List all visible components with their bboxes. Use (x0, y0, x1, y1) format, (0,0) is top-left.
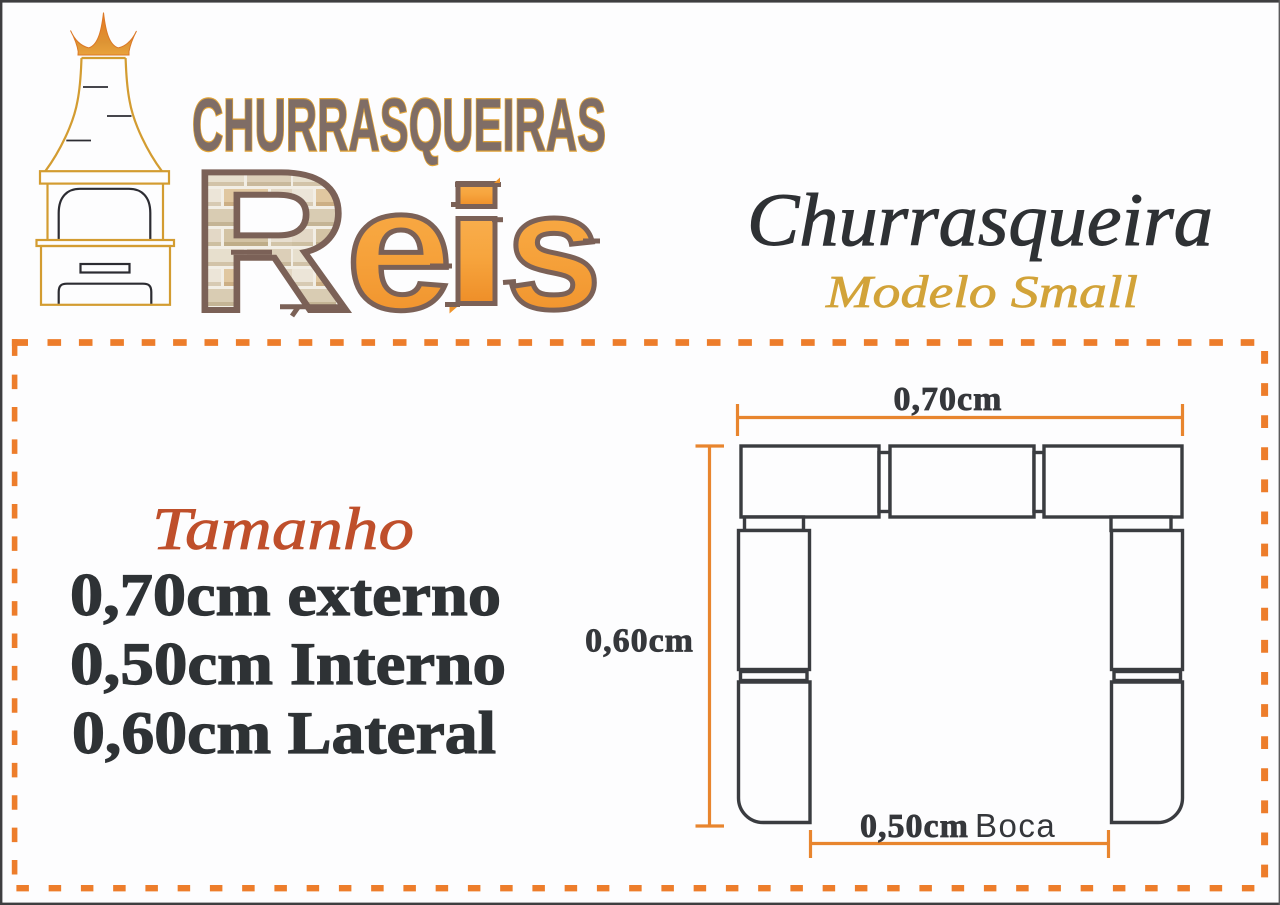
svg-text:0,50cm Interno: 0,50cm Interno (70, 631, 506, 697)
svg-text:0,70cm externo: 0,70cm externo (70, 562, 501, 628)
svg-text:0,60cm Lateral: 0,60cm Lateral (72, 700, 496, 766)
svg-text:R: R (190, 130, 351, 353)
svg-text:e: e (346, 152, 453, 347)
svg-text:Tamanho: Tamanho (152, 496, 414, 562)
svg-text:0,60cm: 0,60cm (585, 623, 694, 660)
svg-text:s: s (506, 157, 601, 345)
svg-text:Boca: Boca (975, 807, 1056, 844)
svg-text:Churrasqueira: Churrasqueira (747, 179, 1213, 262)
svg-text:0,50cm: 0,50cm (860, 808, 969, 845)
svg-text:Modelo Small: Modelo Small (825, 266, 1138, 317)
svg-text:0,70cm: 0,70cm (894, 381, 1003, 418)
